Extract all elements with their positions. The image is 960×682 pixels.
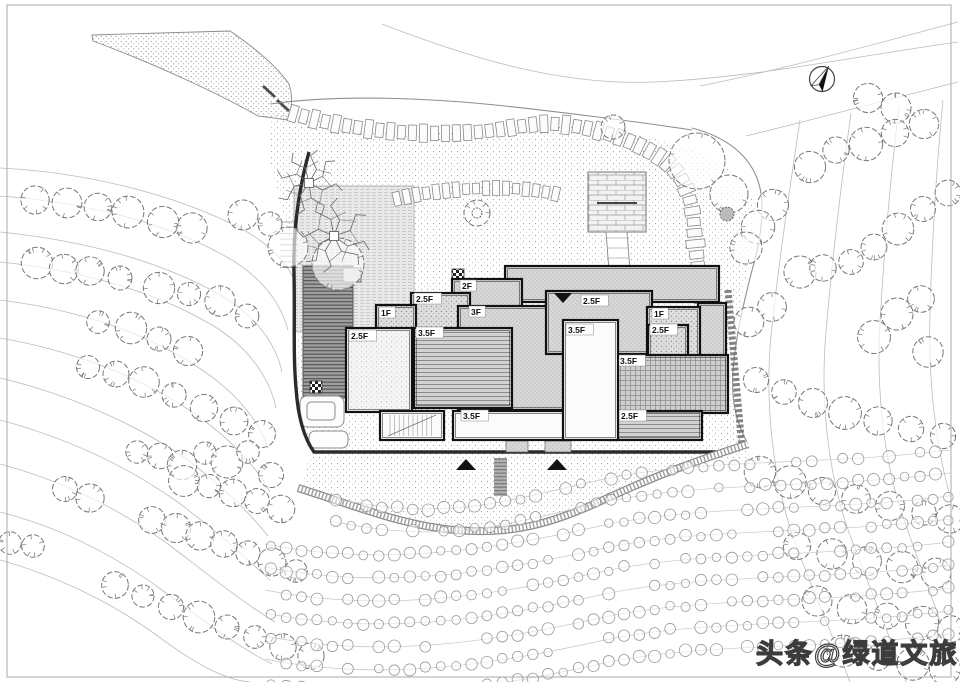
shrub: [681, 553, 691, 563]
stepping-stone: [522, 182, 530, 197]
floor-label: 3.5F: [418, 328, 435, 338]
floor-label: 2.5F: [351, 331, 368, 341]
tree: [211, 531, 238, 558]
shrub: [943, 582, 954, 593]
shrub: [896, 518, 908, 530]
building-roof: [698, 303, 726, 357]
bush: [720, 207, 734, 221]
shrub: [311, 593, 323, 605]
shrub: [633, 606, 645, 618]
shrub: [330, 515, 341, 526]
shrub: [915, 447, 925, 457]
shrub: [681, 511, 689, 519]
stepping-stone: [462, 184, 470, 195]
shrub: [603, 588, 615, 600]
shrub: [405, 617, 415, 627]
shrub: [634, 512, 645, 523]
stepping-stone: [419, 124, 427, 142]
shrub: [944, 605, 953, 614]
shrub: [439, 526, 449, 536]
shrub: [633, 650, 645, 662]
shrub: [497, 561, 508, 572]
tree: [810, 255, 836, 281]
shrub: [837, 478, 848, 489]
shrub: [266, 542, 275, 551]
shrub: [330, 494, 342, 506]
stepping-stone: [495, 122, 505, 138]
shrub: [437, 547, 445, 555]
stepping-stone: [485, 124, 494, 138]
shrub: [821, 478, 833, 490]
stepping-stone: [540, 115, 549, 133]
shrub: [928, 494, 938, 504]
tree: [52, 188, 82, 218]
shrub: [650, 536, 659, 545]
shrub: [453, 501, 465, 513]
shrub: [419, 594, 431, 606]
shrub: [343, 594, 353, 604]
shrub: [666, 601, 675, 610]
shrub: [407, 524, 419, 536]
shrub: [729, 460, 740, 471]
shrub: [542, 623, 554, 635]
stepping-stone: [687, 228, 702, 237]
building: [380, 411, 444, 440]
stepping-stone: [386, 122, 395, 140]
tree: [87, 311, 110, 334]
shrub: [420, 642, 431, 653]
shrub: [928, 516, 938, 526]
shrub: [557, 529, 569, 541]
shrub: [668, 488, 678, 498]
shrub: [913, 609, 922, 618]
shrub: [929, 446, 941, 458]
shrub: [543, 602, 553, 612]
shrub: [620, 518, 629, 527]
shrub: [512, 630, 523, 641]
shrub: [343, 619, 352, 628]
floor-label: 2.5F: [416, 294, 433, 304]
shrub: [357, 595, 369, 607]
shrub: [682, 462, 694, 474]
floor-label: 3.5F: [568, 325, 585, 335]
tree: [76, 355, 99, 378]
shrub: [422, 504, 434, 516]
shrub: [912, 495, 923, 506]
shrub: [773, 617, 784, 628]
shrub: [421, 617, 430, 626]
shrub: [850, 498, 862, 510]
tree: [245, 489, 270, 514]
shrub: [820, 617, 829, 626]
shrub: [574, 573, 583, 582]
shrub: [838, 453, 848, 463]
shrub: [589, 547, 598, 556]
shrub: [435, 591, 447, 603]
shrub: [649, 511, 661, 523]
tree: [21, 247, 52, 278]
stepping-stone: [532, 184, 541, 198]
shrub: [576, 503, 586, 513]
shrub: [574, 595, 584, 605]
shrub: [527, 673, 538, 682]
shrub: [944, 492, 954, 502]
shrub: [374, 620, 383, 629]
shrub: [866, 589, 876, 599]
shrub: [791, 457, 801, 467]
shrub: [328, 617, 336, 625]
shrub: [572, 524, 584, 536]
tree: [258, 212, 282, 236]
tree-trunk-box: [305, 179, 314, 188]
shrub: [619, 561, 630, 572]
stepping-stone: [452, 125, 461, 142]
shrub: [900, 472, 909, 481]
shrub: [929, 587, 938, 596]
shrub: [297, 592, 307, 602]
shrub: [699, 463, 708, 472]
building: [698, 303, 726, 357]
shrub: [622, 493, 631, 502]
shrub: [743, 621, 752, 630]
stepping-stone: [502, 181, 509, 195]
shrub: [572, 549, 584, 561]
tree: [147, 206, 178, 237]
shrub: [758, 551, 768, 561]
shrub: [834, 521, 846, 533]
shrub: [622, 470, 631, 479]
shrub: [529, 490, 541, 502]
building-roof: [563, 320, 618, 440]
shrub: [653, 490, 661, 498]
shrub: [835, 569, 846, 580]
shrub: [484, 497, 495, 508]
north-arrow-icon: [810, 63, 835, 92]
shrub: [666, 581, 675, 590]
shrub: [727, 597, 736, 606]
shrub: [421, 572, 430, 581]
shrub: [897, 612, 907, 622]
tree: [147, 327, 171, 351]
shrub: [359, 551, 368, 560]
pond: [307, 402, 335, 420]
shrub: [758, 572, 768, 582]
shrub: [452, 546, 461, 555]
stepping-stone: [493, 180, 500, 195]
building-3.5F: 3.5F: [614, 355, 728, 413]
shrub: [915, 471, 925, 481]
stepping-stone: [541, 186, 550, 199]
shrub: [543, 668, 554, 679]
building-2.5F: 2.5F: [608, 410, 702, 440]
stepping-stone: [474, 125, 483, 139]
shrub: [883, 451, 895, 463]
shrub: [868, 474, 880, 486]
shrub: [347, 521, 355, 529]
shrub: [866, 613, 877, 624]
shrub: [867, 499, 876, 508]
shrub: [544, 648, 552, 656]
stepping-stone: [512, 183, 520, 194]
shrub: [853, 474, 864, 485]
shrub: [774, 573, 784, 583]
shrub: [712, 623, 721, 632]
shrub: [342, 640, 353, 651]
shrub: [327, 641, 337, 651]
shrub: [789, 503, 798, 512]
shrub: [803, 591, 815, 603]
shrub: [618, 608, 630, 620]
shrub: [436, 662, 445, 671]
shrub: [466, 544, 477, 555]
shrub: [820, 523, 830, 533]
floor-label: 1F: [381, 308, 391, 318]
shrub: [500, 520, 510, 530]
shrub: [573, 619, 584, 630]
shrub: [603, 542, 614, 553]
porch-step: [545, 441, 571, 452]
shrub: [943, 536, 954, 547]
shrub: [573, 662, 583, 672]
shrub: [664, 509, 675, 520]
shrub: [944, 516, 953, 525]
shrub: [588, 568, 600, 580]
shrub: [695, 599, 707, 611]
shrub: [759, 478, 771, 490]
shrub: [452, 661, 461, 670]
shrub: [512, 606, 522, 616]
tree: [730, 232, 762, 264]
shrub: [789, 548, 799, 558]
shrub: [528, 649, 538, 659]
shrub: [681, 602, 690, 611]
shrub: [852, 453, 863, 464]
shrub: [773, 502, 784, 513]
shrub: [819, 571, 830, 582]
floor-label: 2F: [462, 281, 472, 291]
shrub: [374, 551, 384, 561]
shrub: [466, 659, 477, 670]
shrub: [836, 502, 845, 511]
shrub: [358, 619, 369, 630]
tree: [84, 193, 112, 221]
building-3.5F: 3.5F: [453, 410, 565, 440]
shrub: [389, 594, 399, 604]
grate: [310, 381, 322, 393]
shrub: [342, 547, 353, 558]
shrub: [634, 630, 645, 641]
shrub: [312, 569, 321, 578]
shrub: [311, 660, 323, 672]
shrub: [281, 658, 292, 669]
shrub: [666, 650, 674, 658]
shrub: [710, 644, 722, 656]
shrub: [696, 554, 706, 564]
shrub: [650, 580, 660, 590]
shrub: [773, 547, 784, 558]
shrub: [712, 553, 720, 561]
shrub: [297, 636, 307, 646]
stepping-stone: [686, 239, 706, 249]
shrub: [419, 546, 431, 558]
shrub: [266, 633, 276, 643]
shrub: [452, 616, 461, 625]
shrub: [280, 542, 292, 554]
tree: [823, 137, 849, 163]
shrub: [497, 607, 508, 618]
tree: [53, 477, 78, 502]
shrub: [326, 571, 338, 583]
stepping-stone: [430, 126, 438, 140]
stepping-stone: [375, 123, 384, 138]
shrub: [588, 614, 599, 625]
porch-step: [506, 441, 528, 452]
site-plan-drawing: 2F2.5F1F3F2.5F1F2.5F2.5F3.5F3.5F2.5F3.5F…: [0, 0, 960, 682]
shrub: [388, 549, 400, 561]
shrub: [390, 573, 399, 582]
shrub: [404, 571, 415, 582]
shrub: [742, 596, 752, 606]
plan-layers: 2F2.5F1F3F2.5F1F2.5F2.5F3.5F3.5F2.5F3.5F…: [0, 5, 960, 682]
tree: [112, 196, 144, 228]
shrub: [695, 574, 706, 585]
shrub: [470, 523, 479, 532]
shrub: [649, 650, 661, 662]
shrub: [342, 663, 353, 674]
shrub: [695, 507, 706, 518]
stepping-stone: [687, 217, 701, 226]
tree: [103, 361, 129, 387]
tree: [935, 180, 960, 206]
shrub: [928, 563, 937, 572]
shrub: [943, 559, 954, 570]
tree: [0, 532, 21, 555]
shrub: [865, 567, 877, 579]
stepping-stone: [550, 117, 559, 131]
shrub: [281, 613, 291, 623]
shrub: [280, 566, 292, 578]
shrub: [605, 567, 613, 575]
shrub: [591, 498, 600, 507]
shrub: [791, 479, 802, 490]
shrub: [882, 543, 892, 553]
shrub: [388, 640, 400, 652]
tree: [76, 484, 104, 512]
tree-trunk-box: [330, 232, 339, 241]
shrub: [742, 504, 753, 515]
shrub: [482, 589, 491, 598]
shrub: [773, 527, 783, 537]
shrub: [819, 591, 830, 602]
stepping-stone: [528, 117, 538, 133]
tree: [205, 286, 235, 316]
shrub: [482, 566, 492, 576]
shrub: [343, 573, 354, 584]
tree: [169, 466, 200, 497]
tree: [49, 254, 78, 283]
building-2.5F: 2.5F: [648, 324, 688, 357]
shrub: [697, 532, 705, 540]
shrub: [866, 542, 877, 553]
tree: [228, 200, 258, 230]
tree: [22, 535, 45, 558]
building-3.5F: 3.5F: [563, 320, 618, 440]
shrub: [851, 545, 860, 554]
shrub: [714, 461, 725, 472]
shrub: [373, 571, 385, 583]
floor-label: 3F: [471, 307, 481, 317]
shrub: [500, 495, 511, 506]
shrub: [361, 500, 373, 512]
shrub: [498, 587, 506, 595]
shrub: [788, 570, 800, 582]
shrub: [497, 539, 508, 550]
shrub: [757, 503, 769, 515]
shrub: [788, 594, 800, 606]
shrub: [726, 552, 737, 563]
tree: [839, 250, 864, 275]
shrub: [281, 590, 291, 600]
shrub: [296, 545, 307, 556]
tree: [881, 93, 911, 123]
shrub: [482, 611, 492, 621]
tree: [853, 83, 882, 112]
shrub: [311, 547, 322, 558]
shrub: [603, 611, 615, 623]
shrub: [435, 571, 446, 582]
shrub: [558, 575, 569, 586]
floor-label: 1F: [654, 309, 664, 319]
shrub: [407, 504, 418, 515]
shrub: [712, 575, 722, 585]
tree: [139, 507, 166, 534]
tree: [132, 585, 154, 607]
shrub: [603, 656, 614, 667]
shrub: [619, 540, 629, 550]
shrub: [619, 654, 630, 665]
shrub: [559, 668, 568, 677]
shrub: [604, 633, 614, 643]
shrub: [527, 579, 539, 591]
shrub: [576, 479, 585, 488]
shrub: [679, 644, 691, 656]
shrub: [528, 627, 537, 636]
stepping-stone: [689, 250, 704, 260]
tree: [910, 196, 935, 221]
stepping-stone: [422, 187, 431, 200]
shrub: [512, 560, 523, 571]
floor-label: 2.5F: [652, 325, 669, 335]
tree: [734, 307, 764, 337]
shrub: [530, 512, 540, 522]
shrub: [741, 640, 753, 652]
shrub: [588, 661, 599, 672]
shrub: [376, 502, 387, 513]
shrub: [467, 567, 477, 577]
shrub: [680, 529, 692, 541]
shrub: [650, 605, 659, 614]
building-2.5F: 2.5F: [346, 328, 412, 412]
shrub: [928, 608, 937, 617]
tree: [190, 394, 217, 421]
shrub: [312, 615, 322, 625]
shrub: [420, 662, 430, 672]
shrub: [376, 524, 387, 535]
shrub: [682, 485, 694, 497]
shrub: [882, 519, 891, 528]
shrub: [497, 631, 508, 642]
shrub: [897, 588, 907, 598]
